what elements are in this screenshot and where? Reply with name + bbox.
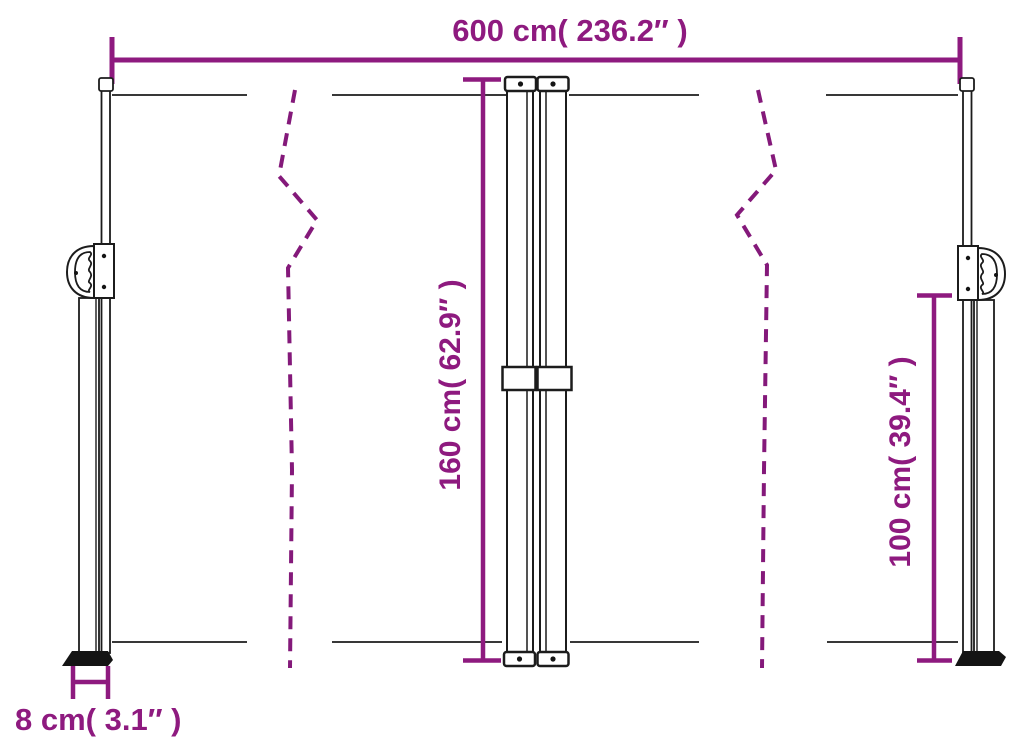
dimension-total-width: 600 cm( 236.2″ ) xyxy=(112,13,960,84)
post-pole xyxy=(102,88,111,653)
dimension-post-height: 100 cm( 39.4″ ) xyxy=(884,296,952,662)
post-top-cap xyxy=(99,78,113,91)
right-side-post xyxy=(955,78,1006,666)
fold-line-dashed xyxy=(279,90,317,668)
left-side-post xyxy=(62,78,114,666)
fold-line-dashed xyxy=(737,90,776,668)
awning-dimension-diagram: 600 cm( 236.2″ ) xyxy=(0,0,1013,747)
base-plate xyxy=(955,651,1006,666)
handle-mount-plate xyxy=(958,246,978,300)
screw-dot xyxy=(994,273,998,277)
screw-dot xyxy=(102,285,106,289)
post-top-cap xyxy=(960,78,974,91)
post-pole xyxy=(963,88,972,653)
rivet-dot xyxy=(518,81,523,86)
base-depth-label: 8 cm( 3.1″ ) xyxy=(15,702,181,737)
base-plate xyxy=(62,651,113,666)
rivet-dot xyxy=(550,656,555,661)
dimension-total-height: 160 cm( 62.9″ ) xyxy=(434,79,501,661)
side-post-height-label: 100 cm( 39.4″ ) xyxy=(884,356,917,567)
handle-mount-plate xyxy=(94,244,114,298)
right-fabric-fold-line xyxy=(737,90,776,668)
rivet-dot xyxy=(517,656,522,661)
center-cassette xyxy=(503,77,572,666)
rivet-dot xyxy=(550,81,555,86)
cassette-mid-band-right xyxy=(538,367,572,390)
cassette-mid-band-left xyxy=(503,367,536,390)
left-fabric-fold-line xyxy=(279,90,317,668)
diagram-svg: 600 cm( 236.2″ ) xyxy=(0,0,1013,747)
screw-dot xyxy=(74,271,78,275)
total-width-label: 600 cm( 236.2″ ) xyxy=(452,13,687,48)
screw-dot xyxy=(102,254,106,258)
screw-dot xyxy=(966,287,970,291)
total-height-label: 160 cm( 62.9″ ) xyxy=(434,279,467,490)
dimension-base-depth: 8 cm( 3.1″ ) xyxy=(15,666,181,737)
screw-dot xyxy=(966,256,970,260)
